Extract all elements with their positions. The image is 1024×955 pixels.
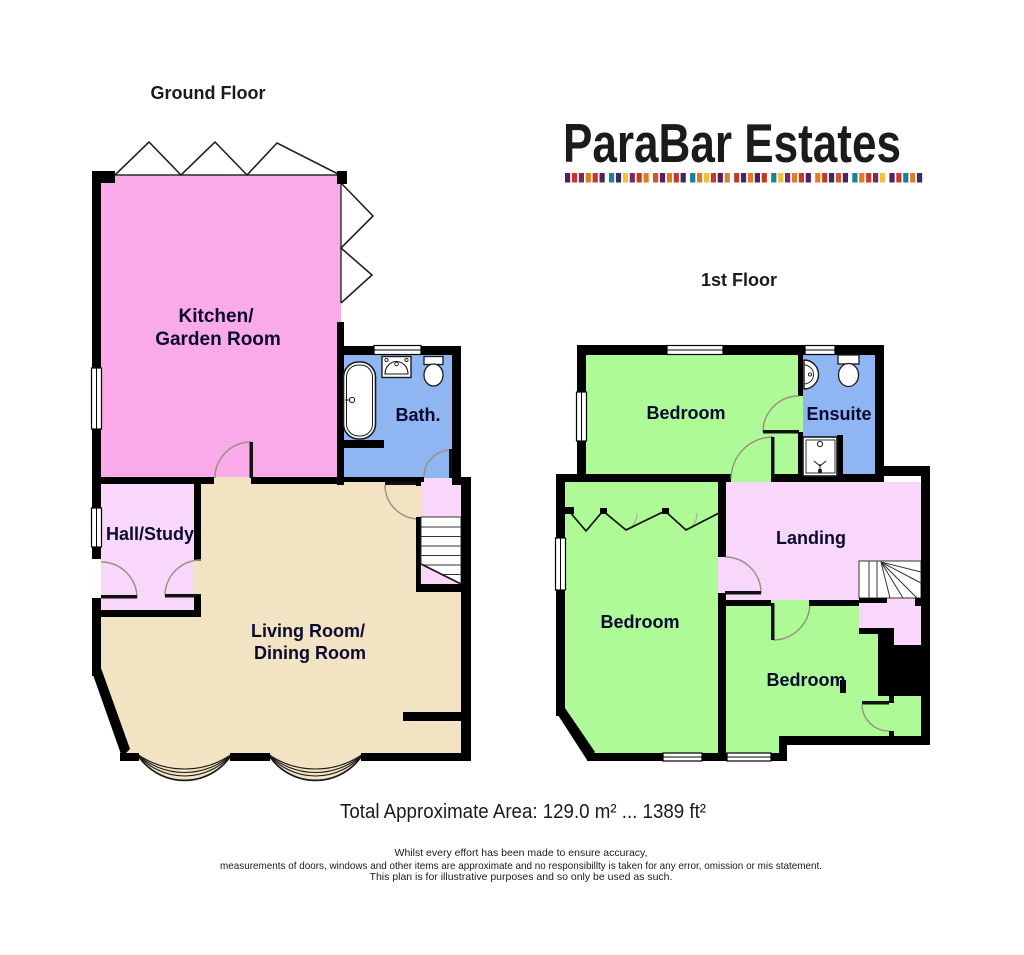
svg-text:Total Approximate Area: 129.0: Total Approximate Area: 129.0 m² ... 138… (340, 801, 706, 823)
svg-text:Living Room/: Living Room/ (251, 621, 365, 641)
svg-text:Whilst every effort has been m: Whilst every effort has been made to ens… (395, 847, 648, 859)
svg-text:ParaBar Estates: ParaBar Estates (563, 112, 901, 174)
svg-text:Bedroom: Bedroom (646, 403, 725, 423)
svg-text:Ensuite: Ensuite (806, 404, 871, 424)
svg-text:Garden Room: Garden Room (155, 329, 281, 350)
svg-text:Landing: Landing (776, 528, 846, 548)
svg-text:1st Floor: 1st Floor (701, 270, 777, 290)
svg-text:This plan is for illustrative: This plan is for illustrative purposes a… (370, 871, 673, 883)
svg-text:Bedroom: Bedroom (600, 612, 679, 632)
svg-text:Ground Floor: Ground Floor (151, 83, 266, 103)
svg-text:Bath.: Bath. (396, 405, 441, 425)
svg-text:Kitchen/: Kitchen/ (179, 306, 255, 327)
svg-text:Hall/Study: Hall/Study (106, 524, 194, 544)
svg-text:Dining Room: Dining Room (254, 643, 366, 663)
svg-text:Bedroom: Bedroom (766, 670, 845, 690)
